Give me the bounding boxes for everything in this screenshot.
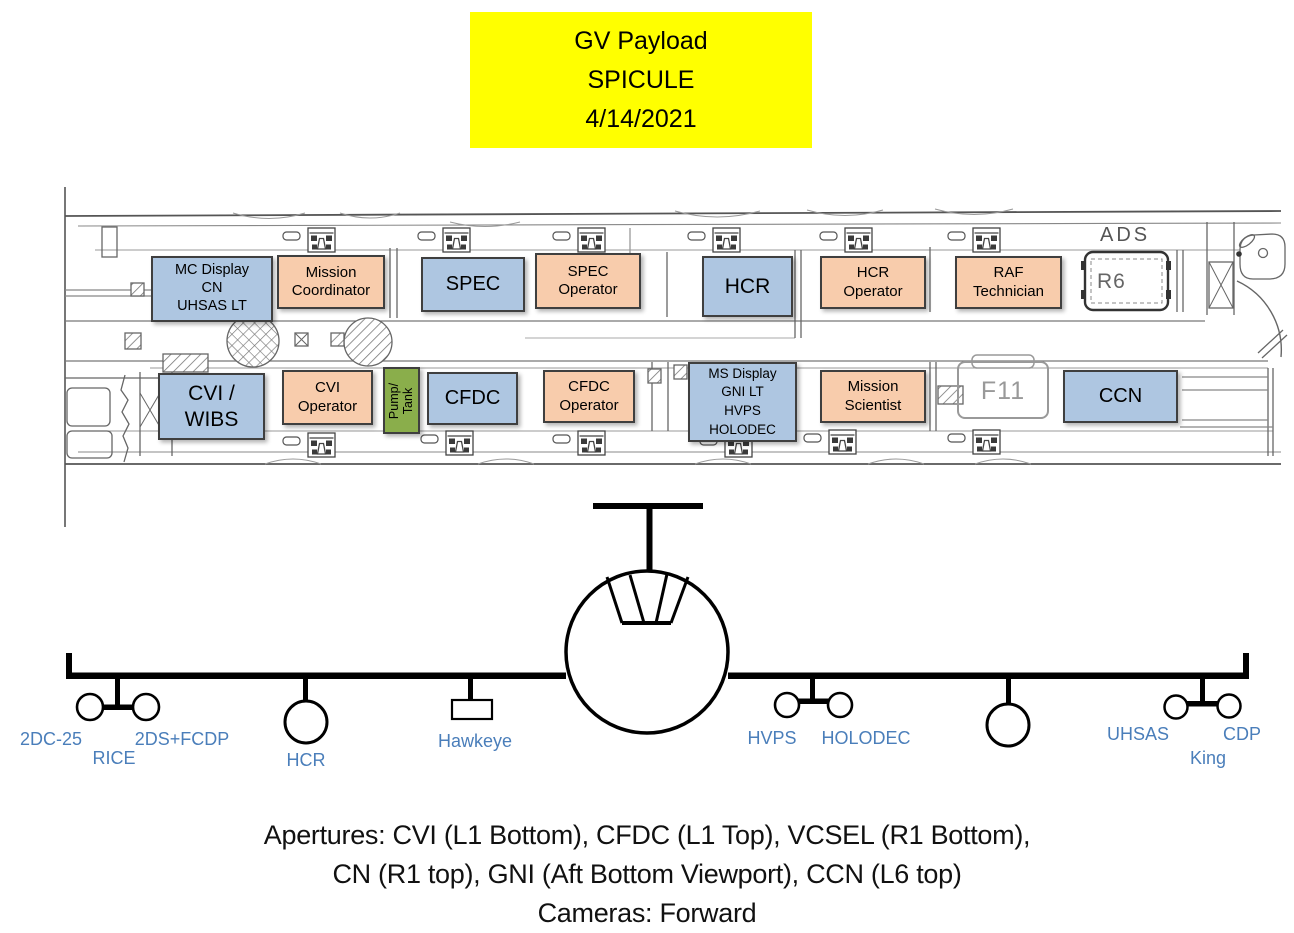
aperture-notes: Apertures: CVI (L1 Bottom), CFDC (L1 Top…: [0, 816, 1294, 933]
rack-r6: [1081, 252, 1171, 310]
wing-label-2ds-fcdp: 2DS+FCDP: [135, 729, 230, 750]
wing-left: [66, 673, 566, 680]
probe-holodec: [828, 693, 852, 717]
equipment-box-hcr: HCR: [702, 256, 793, 317]
wing-label-hvps: HVPS: [747, 728, 796, 749]
equipment-box-cfdc: CFDC: [427, 372, 518, 425]
mast-bar: [593, 503, 703, 509]
station-box-cvi-operator: CVI Operator: [282, 370, 373, 425]
front-view-diagram: [66, 503, 1249, 746]
title-line2: SPICULE: [588, 61, 695, 100]
wing-label-king: King: [1190, 748, 1226, 769]
wing-label-cdp: CDP: [1223, 724, 1261, 745]
station-box-raf-technician: RAF Technician: [955, 256, 1062, 309]
cameras-line: Cameras: Forward: [0, 894, 1294, 933]
equipment-box-ccn: CCN: [1063, 370, 1178, 423]
station-box-mission-coordinator: Mission Coordinator: [277, 255, 385, 309]
equipment-box-spec: SPEC: [421, 257, 525, 312]
probe-cdp: [1218, 695, 1241, 718]
wing-label-rice: RICE: [92, 748, 135, 769]
wing-label-holodec: HOLODEC: [821, 728, 910, 749]
wing-label-hcr: HCR: [287, 750, 326, 771]
fuselage-circle: [566, 571, 728, 733]
probe-hvps: [775, 693, 799, 717]
cabin-floor-plan: ADS R6 F11: [65, 187, 1287, 527]
station-box-cfdc-operator: CFDC Operator: [543, 370, 635, 423]
probe-hawkeye: [452, 700, 492, 719]
x-square: [295, 333, 308, 346]
title-line1: GV Payload: [574, 22, 707, 61]
station-box-spec-operator: SPEC Operator: [535, 253, 641, 309]
equipment-box-cvi-wibs: CVI / WIBS: [158, 373, 265, 440]
f11-label: F11: [981, 377, 1025, 405]
diagonal-hatch-circle: [344, 318, 392, 366]
probe-unlabeled: [987, 704, 1029, 746]
wing-right: [728, 673, 1249, 680]
probe-hcr: [285, 701, 327, 743]
wing-label-uhsas: UHSAS: [1107, 724, 1169, 745]
apertures-line2: CN (R1 top), GNI (Aft Bottom Viewport), …: [0, 855, 1294, 894]
probe-2dc25: [77, 694, 103, 720]
station-box-mission-scientist: Mission Scientist: [820, 370, 926, 423]
crosshatch-circle: [227, 315, 279, 367]
equipment-box-pump-tank: Pump/ Tank: [383, 367, 420, 434]
probe-uhsas: [1165, 696, 1188, 719]
lavatory: [1236, 232, 1285, 279]
title-block: GV Payload SPICULE 4/14/2021: [470, 12, 812, 148]
wingtip-right: [1243, 653, 1249, 679]
mast-vertical: [647, 506, 653, 574]
ads-label: ADS: [1100, 224, 1150, 246]
wingtip-left: [66, 653, 72, 679]
apertures-line1: Apertures: CVI (L1 Bottom), CFDC (L1 Top…: [0, 816, 1294, 855]
equipment-box-ms-display: MS Display GNI LT HVPS HOLODEC: [688, 362, 797, 442]
slide: ADS R6 F11: [0, 0, 1294, 933]
title-line3: 4/14/2021: [585, 100, 696, 139]
equipment-box-mc-display: MC Display CN UHSAS LT: [151, 256, 273, 322]
probe-2ds-fcdp: [133, 694, 159, 720]
station-box-hcr-operator: HCR Operator: [820, 256, 926, 309]
wing-label-2dc25: 2DC-25: [20, 729, 82, 750]
wing-label-hawkeye: Hawkeye: [438, 731, 512, 752]
r6-label: R6: [1097, 270, 1126, 293]
aft-door: [1237, 281, 1287, 358]
x-closet: [1209, 262, 1233, 308]
